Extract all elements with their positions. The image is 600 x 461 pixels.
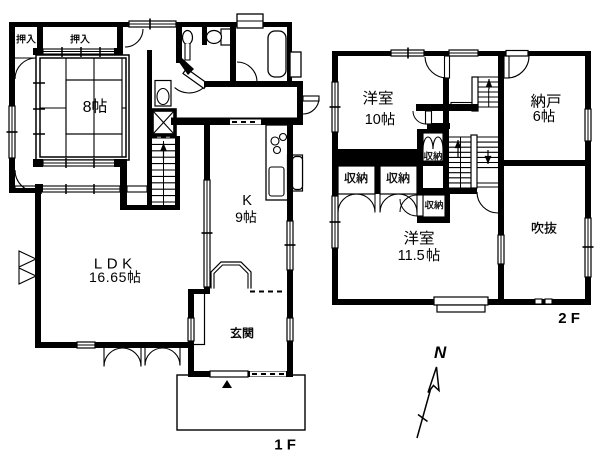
svg-text:K: K <box>242 193 252 209</box>
svg-text:6: 6 <box>533 109 541 125</box>
svg-text:N: N <box>434 343 447 362</box>
svg-text:10: 10 <box>365 112 381 128</box>
svg-text:2 F: 2 F <box>558 310 580 327</box>
svg-text:9: 9 <box>235 209 243 225</box>
svg-text:8: 8 <box>83 99 92 116</box>
svg-text:1 F: 1 F <box>274 436 296 453</box>
svg-text:11.5: 11.5 <box>398 248 425 264</box>
svg-text:16.65: 16.65 <box>89 269 127 285</box>
